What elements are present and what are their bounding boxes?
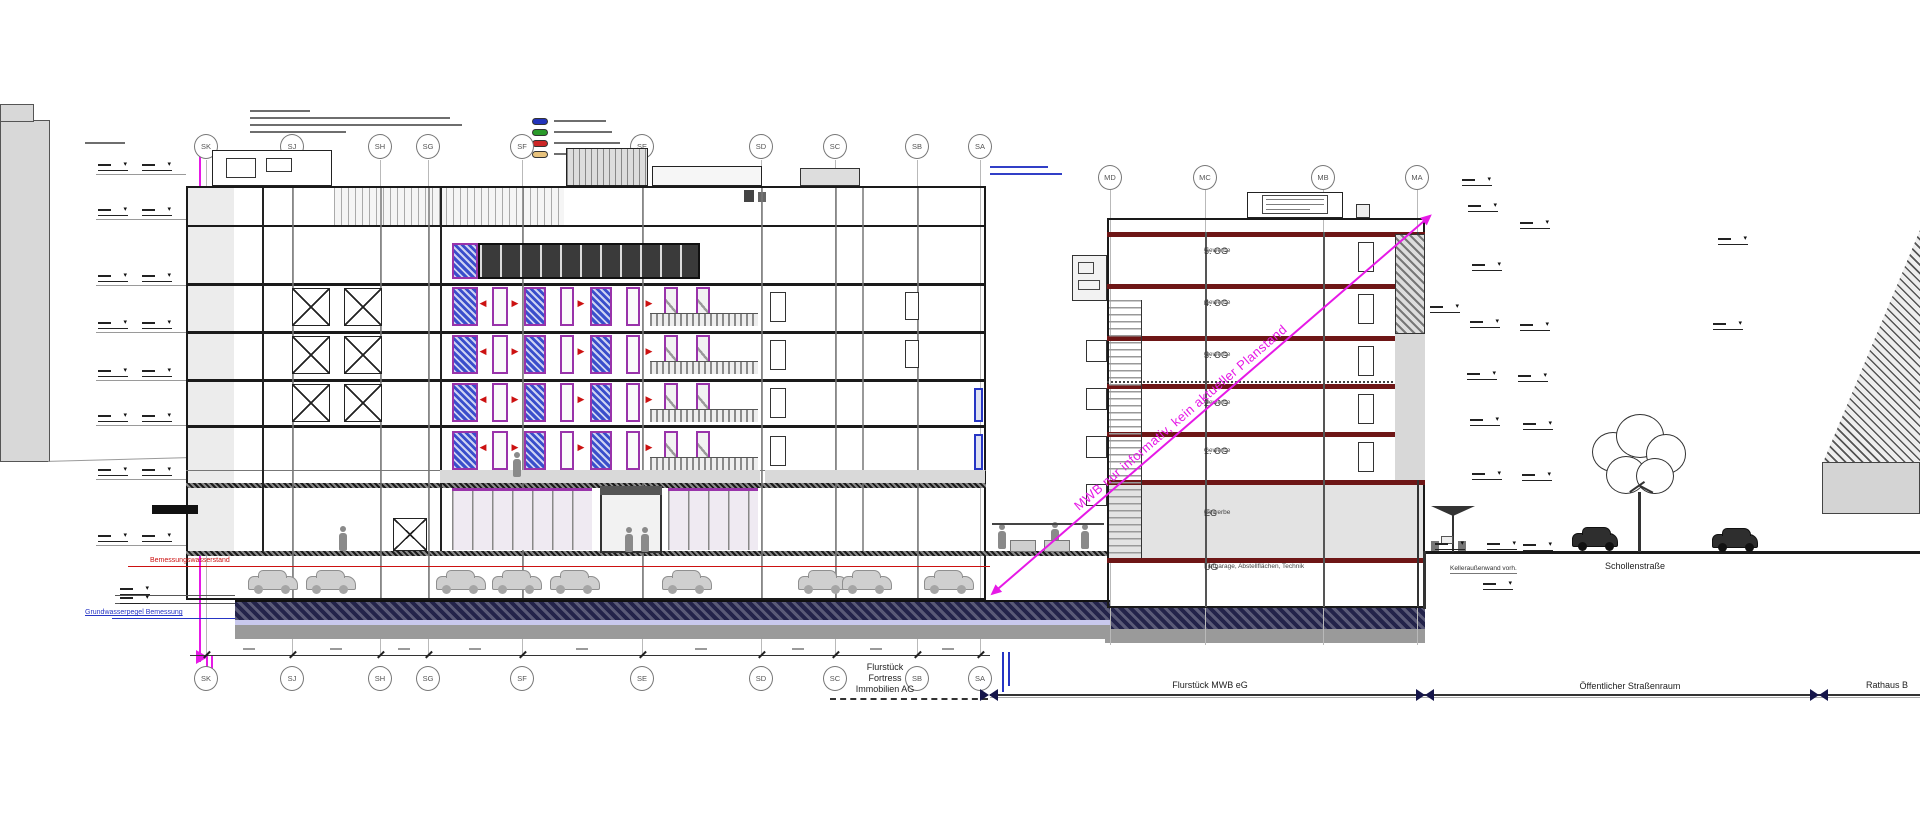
column-line xyxy=(917,188,919,598)
grid-bubble: SG xyxy=(416,134,440,159)
car-icon xyxy=(1712,534,1758,548)
floor-slab xyxy=(186,379,986,382)
balcony-box xyxy=(1086,340,1107,362)
elevation-mark xyxy=(98,322,128,329)
window xyxy=(626,383,640,422)
storefront xyxy=(452,488,592,550)
sill-band xyxy=(440,470,760,483)
sill-band xyxy=(765,470,985,483)
level-line xyxy=(96,479,186,480)
note-line xyxy=(250,131,346,133)
design-water-level-line xyxy=(128,566,990,567)
section-drawing-canvas: SK SJ SH SG SF SE SD SC SB SA SK SJ SH S… xyxy=(0,0,1920,833)
car-icon xyxy=(924,576,974,590)
hatched-window xyxy=(452,243,478,279)
hatched-window xyxy=(452,431,478,470)
grid-bubble: SG xyxy=(416,666,440,691)
parcel-label-street: Öffentlicher Straßenraum xyxy=(1535,681,1725,691)
floor-slab-maroon xyxy=(1107,232,1425,237)
parcel-dashed-line xyxy=(830,698,988,700)
elevation-mark xyxy=(142,415,172,422)
window xyxy=(492,383,508,422)
window xyxy=(492,431,508,470)
red-arrow-icon: ▶ xyxy=(576,395,586,404)
window xyxy=(770,292,786,322)
legend-swatch-red xyxy=(532,140,548,147)
dim-value-line xyxy=(398,648,410,650)
elevation-mark xyxy=(120,597,150,604)
column-line xyxy=(835,188,837,598)
elevation-mark xyxy=(142,370,172,377)
elevation-mark xyxy=(1462,179,1492,186)
subbase-layer xyxy=(235,625,1110,639)
rooftop-note-line xyxy=(1266,209,1310,210)
elevation-mark xyxy=(142,164,172,171)
elevation-mark xyxy=(98,370,128,377)
window xyxy=(1358,294,1374,324)
window xyxy=(770,340,786,370)
parcel-label-fortress: Fortress xyxy=(830,673,940,683)
balcony-railing xyxy=(650,313,758,326)
parcel-line xyxy=(990,694,1920,696)
grid-bubble: SH xyxy=(368,134,392,159)
small-note-line xyxy=(85,142,125,144)
shaft-panel xyxy=(1395,334,1425,480)
hatched-window xyxy=(452,287,478,326)
car-icon xyxy=(842,576,892,590)
street-name-label: Schollenstraße xyxy=(1560,561,1710,571)
elevation-mark xyxy=(1713,323,1743,330)
rooftop-note-line xyxy=(1266,199,1324,200)
elevation-mark xyxy=(142,209,172,216)
subbase-layer xyxy=(1105,629,1425,643)
grid-bubble: SH xyxy=(368,666,392,691)
window xyxy=(1358,442,1374,472)
column-line xyxy=(262,188,264,551)
elevator-shaft xyxy=(344,336,382,374)
grid-bubble: MC xyxy=(1193,165,1217,190)
basement-shaft xyxy=(393,518,427,551)
window xyxy=(1358,394,1374,424)
blue-door-frame xyxy=(974,388,983,422)
left-annex-inner xyxy=(1078,262,1094,274)
red-arrow-icon: ▶ xyxy=(510,395,520,404)
balcony-box xyxy=(1086,436,1107,458)
window xyxy=(560,335,574,374)
grid-bubble: SB xyxy=(905,134,929,159)
elevation-mark xyxy=(1472,473,1502,480)
basement-level-line xyxy=(115,595,235,596)
person-figure xyxy=(640,527,649,553)
elevation-mark xyxy=(98,164,128,171)
level-line xyxy=(96,380,186,381)
elevation-mark xyxy=(1472,264,1502,271)
rooftop-volume xyxy=(800,168,860,186)
car-icon xyxy=(492,576,542,590)
curtain-band xyxy=(334,188,564,225)
interior-wall-line xyxy=(1205,232,1207,607)
legend-label-line xyxy=(554,142,620,144)
car-icon xyxy=(798,576,848,590)
red-arrow-icon: ▶ xyxy=(510,299,520,308)
balcony-railing xyxy=(650,457,758,470)
elevation-mark xyxy=(1470,321,1500,328)
street-ground-line xyxy=(1425,551,1920,554)
window xyxy=(492,335,508,374)
cellar-wall-below-grade xyxy=(1423,551,1426,609)
floor-slab xyxy=(186,225,986,227)
left-annex-inner xyxy=(1078,280,1100,290)
deck-railing xyxy=(992,523,1104,525)
person-figure xyxy=(997,524,1006,550)
boundary-marker-icon xyxy=(980,689,998,701)
foundation-raft xyxy=(235,600,1110,620)
parcel-label-rathaus: Rathaus B xyxy=(1866,680,1920,690)
elevation-mark xyxy=(1435,543,1465,550)
person-figure xyxy=(624,527,633,553)
window xyxy=(1358,346,1374,376)
rooftop-note-line xyxy=(1266,204,1324,205)
note-line xyxy=(250,124,462,126)
elevation-mark xyxy=(98,469,128,476)
planter xyxy=(1010,540,1036,552)
red-arrow-icon: ▶ xyxy=(644,443,654,452)
neighbor-building-left xyxy=(0,120,50,462)
grid-bubble: SC xyxy=(823,134,847,159)
window xyxy=(560,431,574,470)
design-water-level-label: Bemessungswasserstand xyxy=(150,557,230,564)
red-arrow-icon: ▶ xyxy=(644,299,654,308)
elevation-mark xyxy=(1523,423,1553,430)
column-line xyxy=(862,188,864,551)
tree-trunk xyxy=(1638,492,1641,552)
dim-value-line xyxy=(330,648,342,650)
level-line xyxy=(96,219,186,220)
hatched-window xyxy=(452,335,478,374)
hatched-window xyxy=(590,431,612,470)
red-arrow-icon: ◀ xyxy=(478,347,488,356)
balcony-railing xyxy=(650,409,758,422)
note-line xyxy=(250,110,310,112)
blue-note-line xyxy=(990,173,1062,175)
person-figure xyxy=(512,452,521,478)
rooftop-inner-box xyxy=(266,158,292,172)
dim-value-line xyxy=(243,648,255,650)
car-icon xyxy=(1572,533,1618,547)
elevation-mark xyxy=(1518,375,1548,382)
window xyxy=(492,287,508,326)
grid-bubble: SF xyxy=(510,666,534,691)
blue-note-line xyxy=(990,166,1048,168)
legend-swatch-green xyxy=(532,129,548,136)
red-arrow-icon: ▶ xyxy=(644,347,654,356)
grid-bubble: SE xyxy=(630,666,654,691)
grid-bubble: MA xyxy=(1405,165,1429,190)
car-icon xyxy=(248,576,298,590)
level-line xyxy=(96,332,186,333)
window xyxy=(626,335,640,374)
window xyxy=(560,287,574,326)
clerestory-band xyxy=(478,243,700,279)
dimension-line xyxy=(190,655,990,656)
grid-bubble: SJ xyxy=(280,666,304,691)
red-arrow-icon: ▶ xyxy=(576,347,586,356)
grid-bubble: MB xyxy=(1311,165,1335,190)
elevation-mark xyxy=(142,322,172,329)
window xyxy=(770,436,786,466)
hatched-window xyxy=(590,335,612,374)
left-building-wall-zone xyxy=(188,188,234,551)
foundation-raft xyxy=(1105,607,1425,629)
car-icon xyxy=(436,576,486,590)
elevation-mark xyxy=(1522,474,1552,481)
red-arrow-icon: ◀ xyxy=(478,395,488,404)
elevation-mark xyxy=(1468,205,1498,212)
level-line xyxy=(96,174,186,175)
entry-header xyxy=(600,486,662,495)
column-line xyxy=(761,188,763,598)
elevation-mark xyxy=(1520,222,1550,229)
floor-slab xyxy=(186,283,986,286)
cellar-wall-label: Kelleraußenwand vorh. xyxy=(1450,565,1517,574)
elevation-mark xyxy=(1718,238,1748,245)
existing-outline-dotted xyxy=(1107,381,1425,383)
groundwater-level-label: Grundwasserpegel Bemessung xyxy=(85,609,183,616)
boundary-marker-icon xyxy=(1416,689,1434,701)
legend-swatch-blue xyxy=(532,118,548,125)
person-figure xyxy=(338,526,347,552)
window xyxy=(626,431,640,470)
elevator-shaft xyxy=(292,384,330,422)
red-arrow-icon: ◀ xyxy=(478,443,488,452)
elevation-mark xyxy=(1470,419,1500,426)
elevation-mark xyxy=(98,535,128,542)
car-icon xyxy=(306,576,356,590)
far-right-wall xyxy=(1822,462,1920,514)
balcony-railing xyxy=(650,361,758,374)
floor-slab xyxy=(186,425,986,428)
grid-bubble: SD xyxy=(749,134,773,159)
hatched-window xyxy=(524,383,546,422)
rooftop-volume xyxy=(652,166,762,186)
parcel-label-mwb: Flurstück MWB eG xyxy=(1120,680,1300,690)
grid-bubble: MD xyxy=(1098,165,1122,190)
window xyxy=(905,292,919,320)
boundary-marker-icon xyxy=(1810,689,1828,701)
person-figure xyxy=(1080,524,1089,550)
elevation-mark xyxy=(1520,324,1550,331)
dim-value-line xyxy=(792,648,804,650)
legend-swatch-tan xyxy=(532,151,548,158)
elevation-mark xyxy=(98,275,128,282)
elevation-mark xyxy=(1487,543,1517,550)
elevator-shaft xyxy=(344,384,382,422)
far-right-roof-hatch xyxy=(1822,230,1920,465)
floor-slab xyxy=(186,331,986,334)
window xyxy=(770,388,786,418)
note-line xyxy=(250,117,450,119)
elevation-mark xyxy=(142,535,172,542)
roof-vent xyxy=(744,190,754,202)
elevation-mark xyxy=(142,275,172,282)
boundary-note-line xyxy=(1008,652,1010,686)
window xyxy=(905,340,919,368)
grid-bubble: SA xyxy=(968,666,992,691)
elevation-mark xyxy=(1483,583,1513,590)
red-arrow-icon: ▶ xyxy=(644,395,654,404)
grade-line-left xyxy=(48,457,188,462)
grid-bubble: SF xyxy=(510,134,534,159)
elevation-mark xyxy=(1430,306,1460,313)
eg-zone xyxy=(1109,485,1423,558)
dim-value-line xyxy=(576,648,588,650)
parcel-label-fortress: Immobilien AG xyxy=(830,684,940,694)
legend-label-line xyxy=(554,120,606,122)
elevation-mark xyxy=(142,469,172,476)
red-arrow-icon: ▶ xyxy=(576,299,586,308)
hatched-window xyxy=(524,431,546,470)
shaft-hatch xyxy=(1395,234,1425,334)
car-icon xyxy=(550,576,600,590)
hatched-window xyxy=(590,287,612,326)
balcony-box xyxy=(1086,388,1107,410)
grid-bubble: SK xyxy=(194,666,218,691)
red-arrow-icon: ▶ xyxy=(576,443,586,452)
hatched-window xyxy=(524,335,546,374)
roof-vent xyxy=(1356,204,1370,218)
level-line xyxy=(96,285,186,286)
interior-wall-line xyxy=(1323,232,1325,607)
floor-slab-maroon xyxy=(1107,284,1425,289)
window xyxy=(560,383,574,422)
elevation-mark xyxy=(1523,544,1553,551)
hatched-window xyxy=(590,383,612,422)
car-icon xyxy=(662,576,712,590)
elevator-shaft xyxy=(344,288,382,326)
neighbor-building-left-roof xyxy=(0,104,34,122)
dim-value-line xyxy=(870,648,882,650)
level-line xyxy=(96,545,186,546)
boundary-note-line xyxy=(1002,652,1004,692)
elevation-mark xyxy=(98,415,128,422)
hatched-window xyxy=(452,383,478,422)
column-line xyxy=(428,188,430,598)
red-arrow-icon: ▶ xyxy=(510,347,520,356)
terrain-label-box xyxy=(152,505,198,514)
rooftop-volume xyxy=(566,148,648,186)
elevator-shaft xyxy=(292,336,330,374)
floor-slab-maroon xyxy=(1107,480,1425,485)
floor-slab-maroon xyxy=(1107,384,1425,389)
grid-bubble: SA xyxy=(968,134,992,159)
rooftop-inner-box xyxy=(226,158,256,178)
dim-value-line xyxy=(942,648,954,650)
parcel-line-shadow xyxy=(990,697,1920,698)
window xyxy=(626,287,640,326)
column-line xyxy=(440,188,442,551)
hatched-window xyxy=(524,287,546,326)
grid-bubble: SD xyxy=(749,666,773,691)
blue-door-frame xyxy=(974,434,983,470)
dim-value-line xyxy=(695,648,707,650)
dim-value-line xyxy=(469,648,481,650)
stair-run xyxy=(1109,300,1142,558)
legend-label-line xyxy=(554,131,612,133)
level-line xyxy=(96,425,186,426)
tree-canopy xyxy=(1636,458,1674,494)
red-arrow-icon: ▶ xyxy=(510,443,520,452)
storefront xyxy=(668,488,758,550)
elevation-mark xyxy=(1467,373,1497,380)
red-arrow-icon: ◀ xyxy=(478,299,488,308)
elevation-mark xyxy=(98,209,128,216)
parcel-label-fortress: Flurstück xyxy=(830,662,940,672)
elevator-shaft xyxy=(292,288,330,326)
